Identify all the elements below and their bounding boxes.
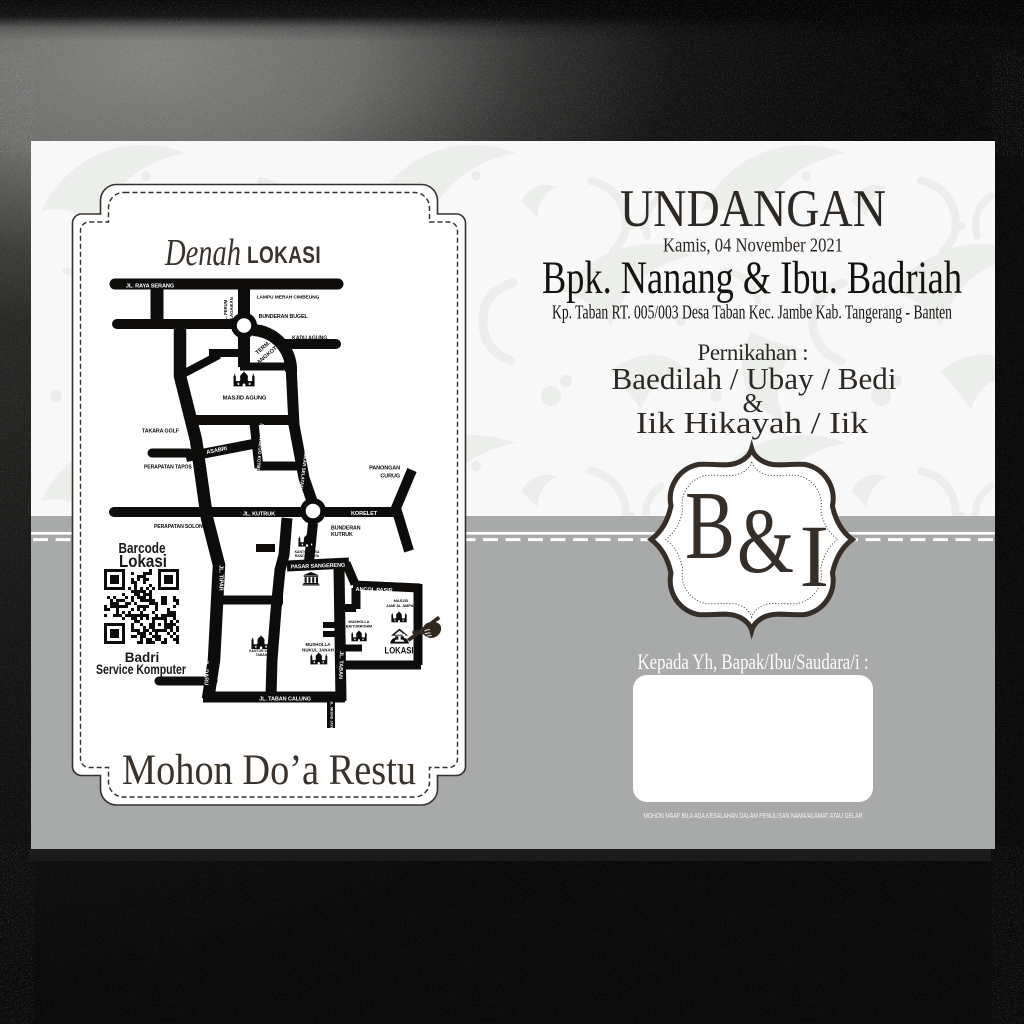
svg-text:JL. NKUNG JAYE: JL. NKUNG JAYE (330, 701, 334, 729)
svg-text:JL. TABAN CALUNG: JL. TABAN CALUNG (259, 697, 311, 703)
svg-text:&: & (737, 490, 794, 593)
svg-text:BAITURROHIM: BAITURROHIM (346, 625, 372, 629)
svg-text:UNDANGAN: UNDANGAN (620, 180, 886, 238)
svg-text:PERAPATAN SOLONG: PERAPATAN SOLONG (154, 524, 207, 530)
svg-text:Kp. Taban RT. 005/003 Desa Tab: Kp. Taban RT. 005/003 Desa Taban Kec. Ja… (552, 303, 952, 324)
svg-text:JL. TIPAR: JL. TIPAR (218, 565, 224, 591)
svg-text:I: I (800, 508, 830, 606)
svg-text:MUSHOLLA: MUSHOLLA (349, 620, 370, 624)
svg-text:MASJID AGUNG: MASJID AGUNG (223, 396, 267, 402)
svg-text:JL. PERUM: JL. PERUM (223, 299, 228, 322)
svg-text:CURUG: CURUG (380, 474, 400, 480)
svg-text:NUKUL JANAH: NUKUL JANAH (302, 648, 334, 653)
svg-text:PANONGAN: PANONGAN (369, 466, 400, 472)
svg-text:JL. RAYA SERANG: JL. RAYA SERANG (126, 284, 174, 290)
svg-text:JL. KUTRUK: JL. KUTRUK (243, 512, 275, 518)
svg-text:TAKARA GOLF: TAKARA GOLF (142, 429, 180, 435)
svg-text:Service Komputer: Service Komputer (96, 661, 186, 677)
svg-text:Iik Hikayah / Iik: Iik Hikayah / Iik (636, 405, 869, 440)
svg-text:LOKASI: LOKASI (385, 646, 414, 657)
svg-text:LOKASI: LOKASI (247, 242, 321, 269)
svg-text:Bpk. Nanang & Ibu. Badriah: Bpk. Nanang & Ibu. Badriah (542, 252, 962, 304)
svg-text:Mohon Do’a Restu: Mohon Do’a Restu (122, 747, 416, 794)
svg-text:Kepada Yh, Bapak/Ibu/Saudara/i: Kepada Yh, Bapak/Ibu/Saudara/i : (638, 649, 869, 674)
svg-text:MUSHOLLA: MUSHOLLA (306, 642, 332, 647)
svg-text:BUNDERAN: BUNDERAN (331, 526, 361, 532)
svg-text:JL. DARU: JL. DARU (203, 660, 209, 685)
svg-text:RANCA BUAYA: RANCA BUAYA (295, 554, 320, 558)
svg-text:LAMPU MERAH CIMBEUNG: LAMPU MERAH CIMBEUNG (257, 295, 320, 301)
svg-text:MOHON MAAF BILA ADA KESALAHAN: MOHON MAAF BILA ADA KESALAHAN DALAM PENU… (644, 811, 863, 820)
svg-text:JL. TABAN: JL. TABAN (337, 651, 344, 679)
svg-text:B: B (685, 472, 735, 580)
svg-text:KADU AGUNG: KADU AGUNG (292, 336, 327, 342)
svg-text:Lokasi: Lokasi (119, 551, 167, 571)
svg-text:PERAPATAN TAPOS: PERAPATAN TAPOS (144, 465, 192, 471)
svg-text:TELAGAIKAN: TELAGAIKAN (229, 297, 234, 324)
svg-text:JAMI AL AMPAL: JAMI AL AMPAL (386, 603, 416, 608)
svg-text:Denah: Denah (164, 232, 241, 274)
svg-text:BUNDERAN BUGEL: BUNDERAN BUGEL (259, 314, 309, 320)
svg-text:KUTRUK: KUTRUK (331, 532, 353, 538)
svg-text:KORELET: KORELET (351, 511, 378, 517)
svg-text:TABAN: TABAN (256, 653, 268, 657)
